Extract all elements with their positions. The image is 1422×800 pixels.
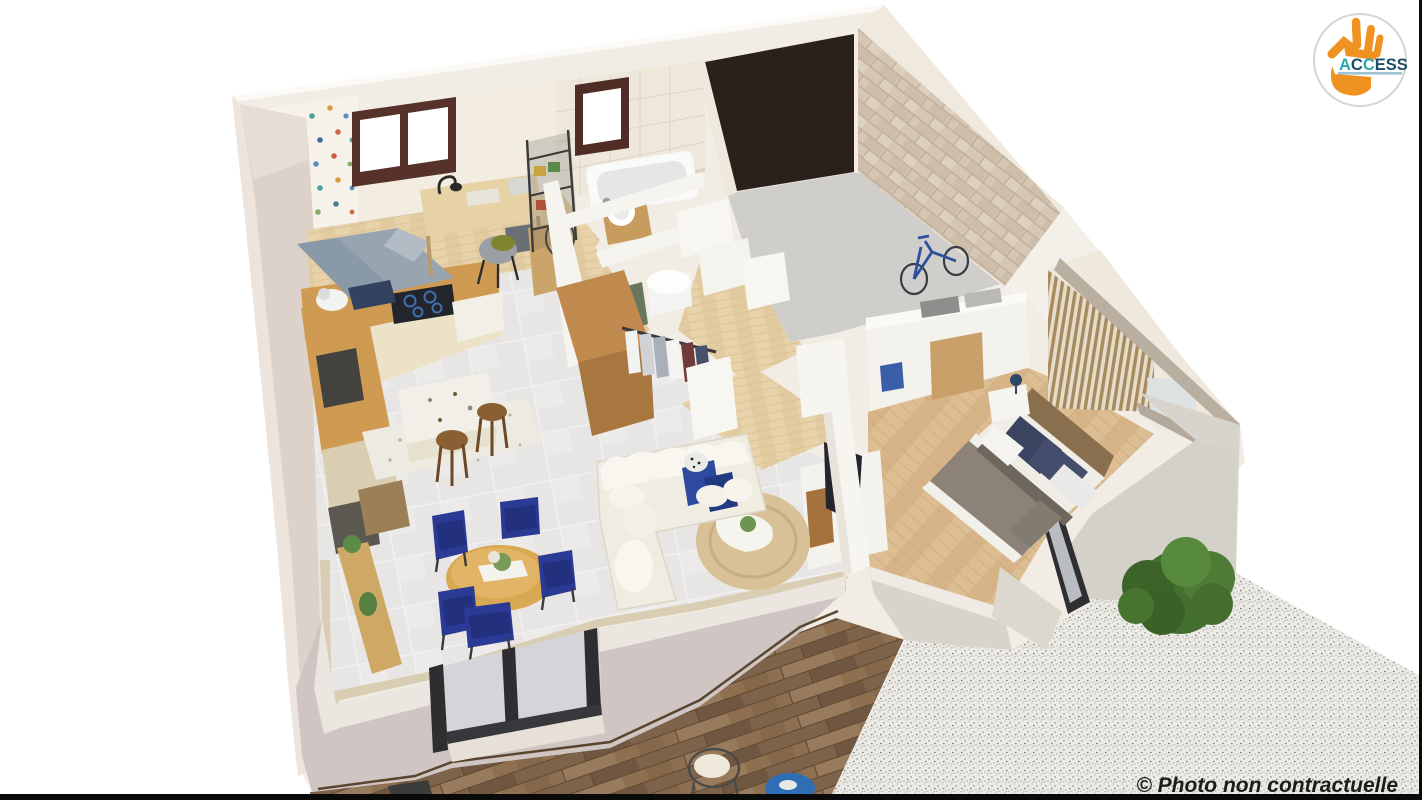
svg-text:ACCESS: ACCESS [1339, 56, 1408, 74]
svg-text:© Photo non contractuelle: © Photo non contractuelle [1136, 774, 1398, 797]
